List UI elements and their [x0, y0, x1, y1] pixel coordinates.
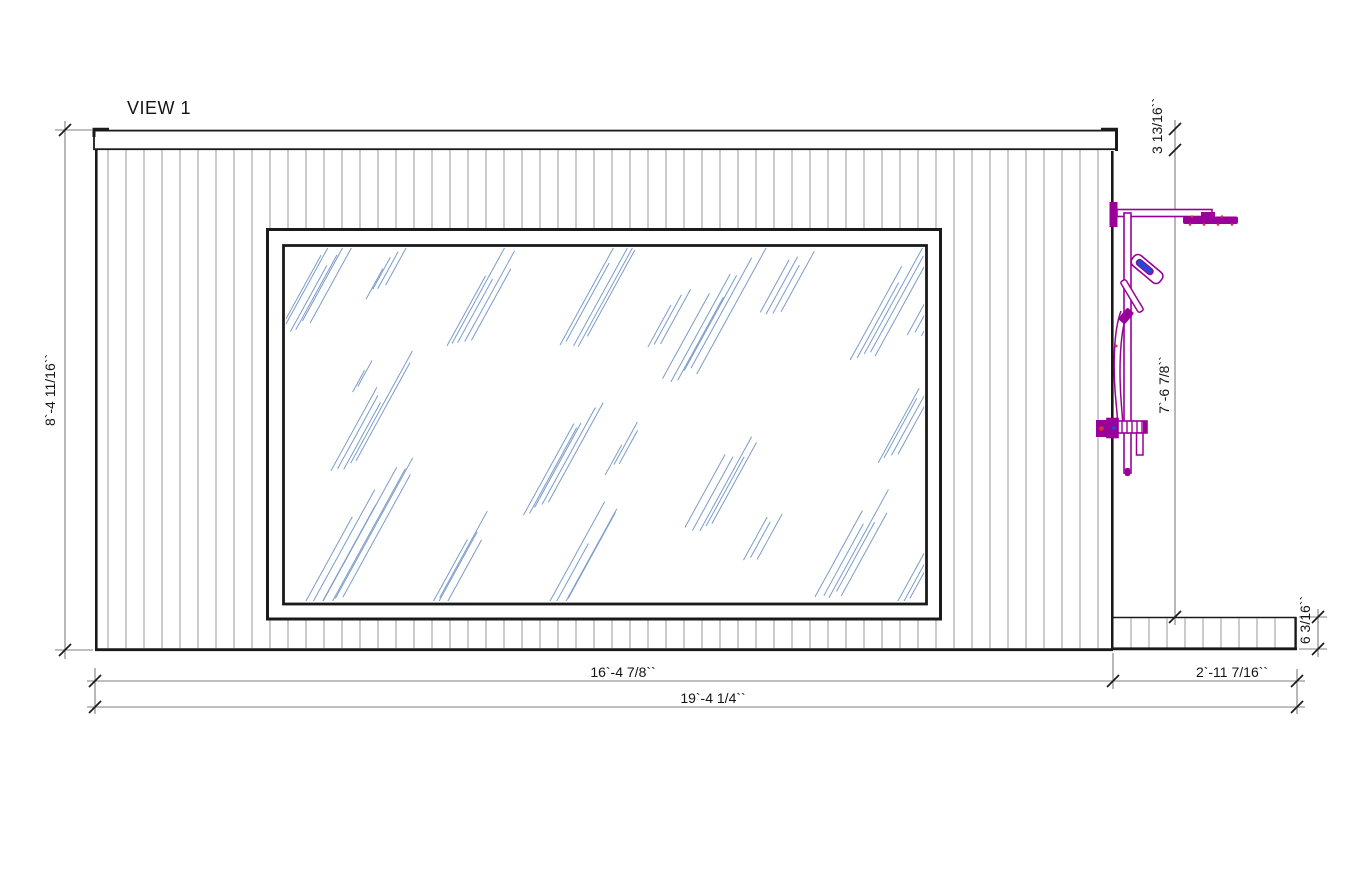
window [268, 230, 959, 620]
dim-fascia-height-label: 3 13/16`` [1150, 98, 1164, 154]
window-inner-frame [284, 246, 927, 605]
dim-shower-height-label: 7`-6 7/8`` [1157, 356, 1171, 414]
hose-joint-dot [1115, 345, 1118, 348]
shower-rail-end-cap [1125, 468, 1130, 476]
dim-wall-height-label: 8`-4 11/16`` [43, 354, 57, 426]
dim-bench-height-label: 6 3/16`` [1298, 596, 1312, 644]
shower-valve [1096, 419, 1147, 456]
dim-total-width-label: 19`-4 1/4`` [680, 691, 745, 705]
valve-blue-dot [1112, 426, 1116, 430]
valve-red-dot [1099, 426, 1104, 431]
view-title: VIEW 1 [127, 99, 191, 117]
dim-wall-width-label: 16`-4 7/8`` [590, 665, 655, 679]
shower-fixture [1096, 202, 1238, 476]
valve-handle-cap [1143, 421, 1147, 433]
bench-platform [1113, 617, 1297, 650]
fascia-band [93, 128, 1119, 151]
dim-bench-width-label: 2`-11 7/16`` [1196, 665, 1268, 679]
valve-lower-tab [1137, 433, 1144, 455]
elevation-view-canvas: VIEW 1 8`-4 11/16`` 3 13/16`` 7`-6 7/8``… [0, 0, 1366, 877]
shower-rail [1124, 213, 1131, 473]
